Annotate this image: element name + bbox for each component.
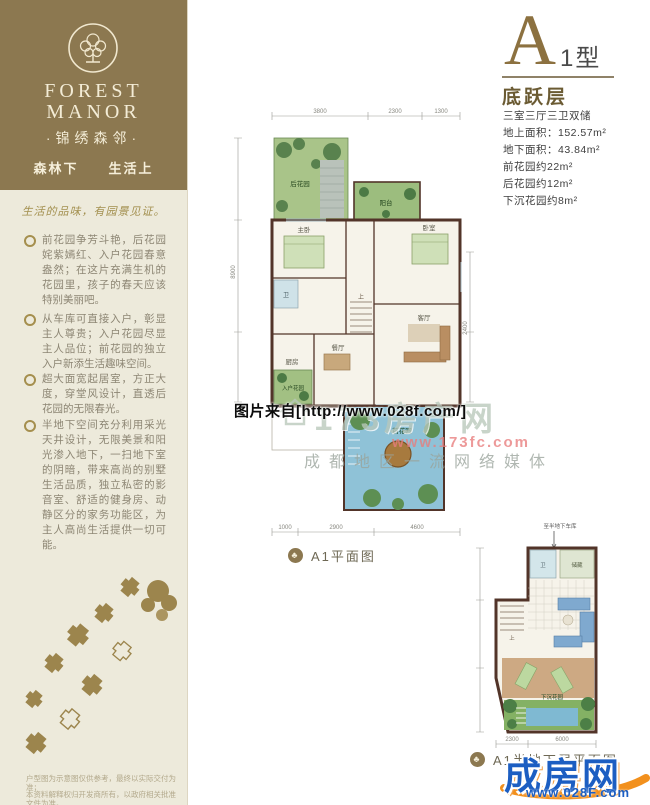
unit-spec-sunken: 下沉花园约8m² <box>503 193 578 208</box>
brand-tagline: 森林下 生活上 <box>0 158 187 177</box>
room-label-back-garden: 后花园 <box>290 179 310 188</box>
dim-bottom-2: 2900 <box>329 525 343 531</box>
site-plan-illustration <box>6 565 184 767</box>
dim-right-1: 2400 <box>463 321 469 335</box>
unit-spec-backgdn: 后花园约12m² <box>503 176 573 191</box>
selling-point-text: 超大面宽起居室，方正大度，穿堂风设计，直透后花园的无限春光。 <box>42 372 166 417</box>
room-label-entry-garden: 入户花园 <box>282 384 305 392</box>
unit-spec-rooms: 三室三厅三卫双储 <box>503 108 591 123</box>
unit-spec-frontgdn: 前花园约22m² <box>503 159 573 174</box>
room-label-living: 客厅 <box>418 313 432 322</box>
selling-point-text: 从车库可直接入户，彰显主人尊贵；入户花园尽显主人品位；前花园的独立入户新添生活趣… <box>42 312 166 372</box>
main-plan-caption: ♣ A1平面图 <box>288 546 376 565</box>
dim-top-2: 2300 <box>388 109 402 115</box>
caption-emblem-icon: ♣ <box>288 548 303 563</box>
unit-floor-label: 底跃层 <box>502 82 568 109</box>
unit-divider <box>502 76 614 78</box>
unit-spec-above: 地上面积：152.57m² <box>503 125 606 140</box>
photo-credit-watermark: 图片来自[http://www.028f.com/] <box>234 400 466 421</box>
dim-bottom-1: 1000 <box>278 525 292 531</box>
dim-bottom-3: 4600 <box>410 525 424 531</box>
dim-left-1: 8900 <box>231 265 237 279</box>
sidebar-header: FOREST MANOR ·锦绣森邻· 森林下 生活上 <box>0 0 187 190</box>
brand-en-line2: MANOR <box>0 101 187 124</box>
stairs-up-label: 上 <box>358 293 364 301</box>
basement-top-note: 至半地下车库 <box>543 522 577 530</box>
ring-bullet-icon <box>24 374 36 386</box>
unit-letter: A <box>504 4 556 76</box>
sidebar: FOREST MANOR ·锦绣森邻· 森林下 生活上 生活的品味，有园景见证。… <box>0 0 188 805</box>
bsmt-room-label-storage: 储藏 <box>571 561 583 569</box>
brand-cn: ·锦绣森邻· <box>0 128 187 148</box>
chengfangwang-logo: 成房网 www.028F.com <box>498 746 650 802</box>
room-label-master: 主卧 <box>298 225 312 234</box>
bsmt-stairs-up-label: 上 <box>509 634 515 642</box>
logo-url: www.028F.com <box>526 785 630 800</box>
portal-slogan: 成都地区一流网络媒体 <box>304 448 554 472</box>
disclaimer-line-2: 本资料解释权归开发商所有，以政府相关批准文件为准。 <box>26 790 176 805</box>
room-label-balcony: 阳台 <box>380 198 393 207</box>
dim-top-1: 3800 <box>313 109 327 115</box>
intro-script-line: 生活的品味，有园景见证。 <box>0 203 187 219</box>
forest-manor-emblem-icon <box>65 20 121 76</box>
room-label-dining: 餐厅 <box>332 343 346 352</box>
selling-point-1: 前花园争芳斗艳，后花园姹紫嫣红、入户花园春意盎然；在这片充满生机的花园里，孩子的… <box>24 233 166 308</box>
ring-bullet-icon <box>24 235 36 247</box>
selling-point-text: 前花园争芳斗艳，后花园姹紫嫣红、入户花园春意盎然；在这片充满生机的花园里，孩子的… <box>42 233 166 308</box>
bsmt-room-label-sunken-garden: 下沉花园 <box>541 693 564 701</box>
brand-en-line1: FOREST <box>0 80 187 103</box>
selling-point-3: 超大面宽起居室，方正大度，穿堂风设计，直透后花园的无限春光。 <box>24 372 166 417</box>
ring-bullet-icon <box>24 314 36 326</box>
room-label-kitchen: 厨房 <box>286 357 299 366</box>
main-floor-plan: 3800 2300 1300 1000 2900 4600 8900 2400 … <box>226 102 478 542</box>
selling-point-2: 从车库可直接入户，彰显主人尊贵；入户花园尽显主人品位；前花园的独立入户新添生活趣… <box>24 312 166 372</box>
selling-point-4: 半地下空间充分利用采光天井设计，无限美景和阳光渗入地下，一扫地下室的阴暗，带来高… <box>24 418 166 553</box>
bsmt-dim-bottom-1: 2300 <box>505 737 519 743</box>
dim-top-3: 1300 <box>434 109 448 115</box>
selling-point-text: 半地下空间充分利用采光天井设计，无限美景和阳光渗入地下，一扫地下室的阴暗，带来高… <box>42 418 166 553</box>
unit-type-suffix: 1型 <box>560 38 601 73</box>
bsmt-dim-bottom-2: 6000 <box>555 737 569 743</box>
basement-floor-plan: 至半地下车库 2300 6000 上 卫 储藏 <box>468 518 638 753</box>
room-label-bedroom: 卧室 <box>423 223 437 232</box>
brochure-page: FOREST MANOR ·锦绣森邻· 森林下 生活上 生活的品味，有园景见证。… <box>0 0 650 805</box>
bsmt-room-label-bath: 卫 <box>540 562 546 569</box>
main-plan-caption-text: A1平面图 <box>311 546 376 565</box>
ring-bullet-icon <box>24 420 36 432</box>
room-label-bath: 卫 <box>283 292 289 299</box>
unit-spec-below: 地下面积：43.84m² <box>503 142 600 157</box>
caption-emblem-icon: ♣ <box>470 752 485 767</box>
